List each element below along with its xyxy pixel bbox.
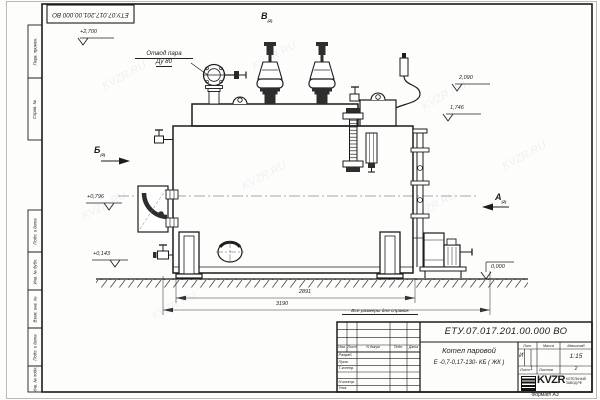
kvzr-logo-caption-line2: ЗАВОД РФ [566,381,586,385]
row-prov: Пров. [339,360,349,364]
row-utv: Утв. [339,386,348,390]
water-level-gauge [343,108,377,172]
row-nkontr: Н.контр. [339,380,355,384]
safety-valve-1 [257,42,283,104]
top-stamp-doc-number: ЕТУ.07.017.201.00.000 ВО [47,5,134,23]
kvzr-logo-icon [521,376,536,391]
view-marker-v: В(2) [261,12,272,23]
frame-label-podp2: Подп. и дата [28,328,42,366]
sheet-label: Лист [520,368,530,372]
lifting-lug [233,97,247,104]
kvzr-logo-caption: КОТЕЛЬНЫЙ ЗАВОД РФ [566,377,586,385]
dimension-3190: 3190 [252,301,312,307]
elevation-1746: 1,746 [450,105,464,111]
view-marker-a: А(2) [495,193,506,204]
frame-label-inv-dubl: Инв. № дубл. [28,252,42,290]
col-data: Дата [407,346,420,350]
lit-value: И [518,353,525,360]
frame-label-vzam-text: Взам. инв. № [33,296,38,322]
col-podp: Подп. [390,346,407,350]
frame-label-inv-podl-text: Инв. № подл. [33,366,38,392]
frame-label-podp1: Подп. и дата [28,210,42,252]
manhole [216,241,244,263]
sheets-label: Листов [539,368,553,372]
col-list: Лист [347,346,357,350]
row-razrab: Разраб. [339,353,353,357]
elevation-0796: +0,796 [87,194,104,200]
frame-label-podp2-text: Подп. и дата [33,334,38,360]
sheet-value: 1 [530,367,533,373]
lit-header: Лит. [518,344,537,348]
safety-valve-2 [309,42,335,104]
reference-note: Все размеры для справок [342,309,418,315]
elevation-2700: +2,700 [80,29,97,35]
frame-label-inv-dubl-text: Инв. № дубл. [33,258,38,284]
ground-line [96,279,528,288]
mass-header: Масса [537,344,560,348]
view-marker-b: Б(2) [94,146,105,157]
steam-outlet-callout: Отвод пара Ду 80 [135,51,193,67]
product-name: Котел паровой [421,347,517,355]
format-note: Формат А3 [505,393,585,399]
view-marker-a-ref: (2) [502,199,507,204]
view-marker-b-ref: (2) [100,152,105,157]
drawing-sheet: KVZR.RU KVZR.RU KVZR.RU KVZR.RU KVZR.RU … [0,0,600,400]
dimension-2891: 2891 [275,289,335,295]
sheets-value: 2 [560,367,592,373]
frame-label-sprav: Справ. № [28,78,42,140]
view-marker-v-ref: (2) [268,18,273,23]
boiler-shell [173,104,413,273]
scale-value: 1:15 [560,353,592,360]
product-model: Е -0,7-0,17-130- КБ ( ЖК ) [421,360,517,367]
steam-outlet-callout-line2: Ду 80 [156,59,172,67]
scale-header: Масштаб [560,344,592,348]
kvzr-logo-text: KVZR [537,374,565,386]
title-doc-number: ЕТУ.07.017.201.00.000 ВО [421,322,591,342]
col-izm: Изм. [337,346,347,350]
frame-label-perv: Перв. примен. [28,25,42,78]
support-legs [176,232,403,278]
row-tkontr: Т.контр. [339,366,355,370]
frame-label-sprav-text: Справ. № [33,99,38,118]
frame-label-perv-text: Перв. примен. [33,38,38,66]
elevation-0143: +0,143 [93,251,110,257]
frame-label-inv-podl: Инв. № подл. [28,366,42,392]
blowdown-valve [153,245,173,259]
frame-label-vzam: Взам. инв. № [28,290,42,328]
burner [138,186,178,232]
frame-label-podp1-text: Подп. и дата [33,218,38,244]
left-top-valve [155,130,174,143]
feed-pump-unit [413,233,472,278]
elevation-0000: 0,000 [491,264,505,270]
col-doc: N докум. [357,346,390,350]
elevation-2090: 2,090 [459,75,473,81]
